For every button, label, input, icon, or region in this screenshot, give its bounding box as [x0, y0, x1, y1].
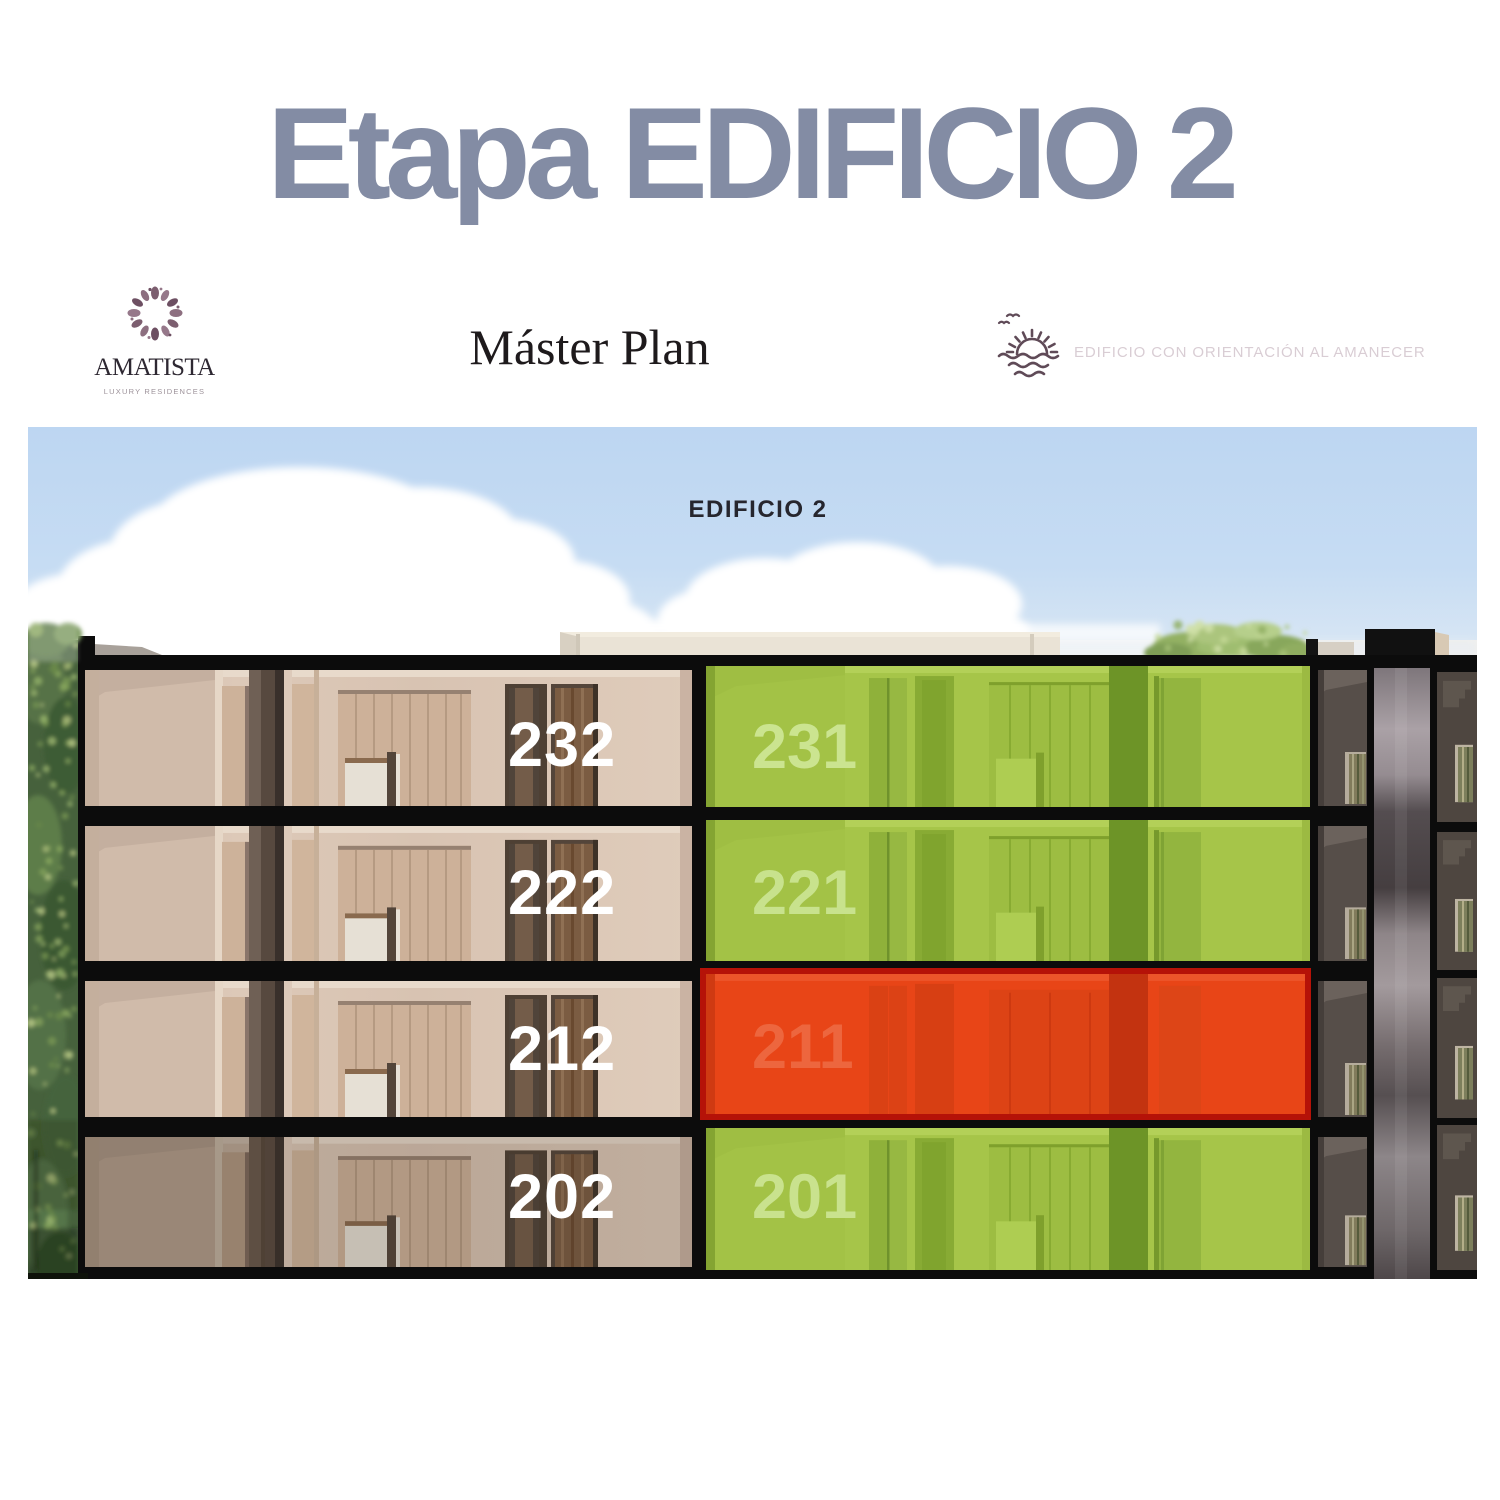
svg-text:232: 232 [508, 710, 616, 780]
svg-text:222: 222 [508, 858, 616, 928]
svg-text:EDIFICIO 2: EDIFICIO 2 [688, 496, 827, 523]
svg-text:201: 201 [752, 1162, 857, 1232]
svg-text:212: 212 [508, 1014, 616, 1084]
svg-text:211: 211 [752, 1012, 854, 1082]
svg-text:231: 231 [752, 712, 857, 782]
svg-text:221: 221 [752, 858, 857, 928]
svg-text:202: 202 [508, 1162, 616, 1232]
